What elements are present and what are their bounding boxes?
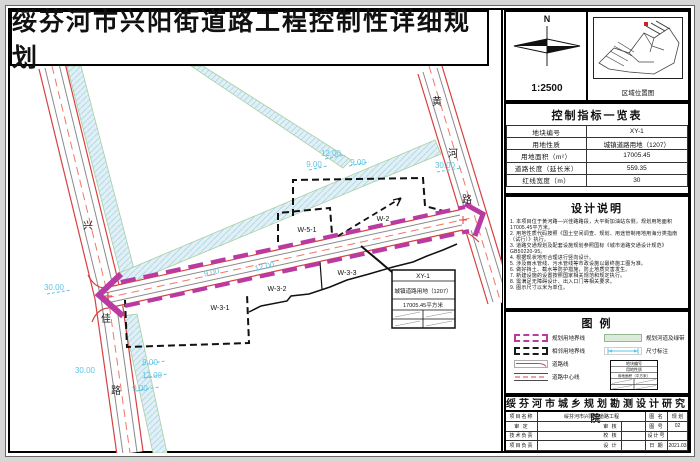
- scale-label: 1:2500: [506, 83, 588, 94]
- row-label: 地块编号: [507, 126, 587, 138]
- dim-label: 9.00: [142, 358, 158, 367]
- approver-value: [538, 422, 600, 432]
- legend-item: 规划用地界线: [514, 334, 585, 342]
- design-no-value: [668, 432, 688, 442]
- design-no-label: 设计号: [646, 432, 668, 442]
- road-name-char: 兴: [83, 220, 93, 232]
- plan-map: 12.00 9.00 9.00 30.00 9.00 12.00 30.00 3…: [9, 66, 502, 453]
- design-note: 9. 图示尺寸以米为单位。: [510, 285, 684, 291]
- reviewer-label: 审 核: [600, 422, 622, 432]
- channel-greenbelt-symbol: [604, 334, 642, 342]
- road-name-char: 佳: [101, 312, 111, 325]
- parcel-info-box: XY-1 城镇道路用地（1207） 17005.45平方米: [361, 246, 455, 328]
- project-lead-label: 项目负责: [506, 441, 538, 451]
- legend-item: 尺寸标注: [604, 347, 668, 355]
- control-table-title: 控制指标一览表: [506, 104, 688, 125]
- design-notes-box: 设计说明 1. 本项目位于黄河路—兴佳路路段，大平街加油站东侧，规划用地面积17…: [504, 195, 690, 310]
- info-box-use: 城镇道路用地（1207）: [394, 287, 451, 295]
- reviewer-value: [622, 422, 646, 432]
- approver-label: 审 定: [506, 422, 538, 432]
- row-value: XY-1: [586, 126, 687, 138]
- legend-item: 相邻用地界线: [514, 347, 585, 355]
- adjacent-boundary-symbol: [514, 347, 548, 355]
- checker-label: 校 核: [600, 432, 622, 442]
- compass-location-box: N 1:2500 区域位置图: [504, 10, 690, 102]
- date-label: 日 期: [646, 441, 668, 451]
- title-block-grid: 项目名称 绥芬河市兴阳街道路工程 图 名 规 划 审 定 审 核 图 号 02 …: [506, 412, 688, 451]
- huanghe-road: [418, 66, 502, 304]
- project-name-label: 项目名称: [506, 412, 538, 422]
- road-line-symbol: [514, 360, 548, 368]
- designer-label: 设 计: [600, 441, 622, 451]
- dimension-symbol: [604, 347, 642, 355]
- design-notes-title: 设计说明: [506, 197, 688, 218]
- north-label: N: [506, 14, 588, 24]
- row-label: 用地性质: [507, 138, 587, 150]
- sheet-no-label: 图 号: [646, 422, 668, 432]
- dim-label: 30.00: [75, 366, 96, 375]
- road-name-char: 路: [462, 193, 472, 206]
- institute-name: 绥芬河市城乡规划勘测设计研究院: [506, 397, 688, 412]
- planned-boundary-symbol: [514, 334, 548, 342]
- control-indicator-box: 控制指标一览表 地块编号 XY-1 用地性质 城镇道路用地（1207） 用地面积…: [504, 102, 690, 195]
- project-lead-value: [538, 441, 600, 451]
- centerline-symbol: [514, 373, 548, 381]
- design-note: 2. 用地性质代码按照《国土空间调查、规划、用途管制用地用海分类指南（试行）》执…: [510, 231, 684, 243]
- table-row: 道路长度（延长米） 559.35: [507, 162, 688, 174]
- drawing-name-value: 规 划: [668, 412, 688, 422]
- row-value: 城镇道路用地（1207）: [586, 138, 687, 150]
- legend-label: 规划河道及绿带: [646, 334, 685, 342]
- design-note: 3. 道路交通规划及配套设施规划参照国标《城市道路交通设计规范》GB50220-…: [510, 243, 684, 255]
- legend-label: 尺寸标注: [646, 347, 668, 355]
- dim-label: 12.00: [321, 149, 342, 158]
- parcel-label: W-3-1: [211, 305, 230, 312]
- dim-label: 9.00: [132, 384, 148, 393]
- title-box: 绥芬河市兴阳街道路工程控制性详细规划: [10, 10, 489, 66]
- legend-item: 规划河道及绿带: [604, 334, 685, 342]
- plan-sheet-page: 绥芬河市兴阳街道路工程控制性详细规划: [0, 0, 700, 462]
- design-note: 1. 本项目位于黄河路—兴佳路路段，大平街加油站东侧，规划用地面积17005.4…: [510, 219, 684, 231]
- location-map-caption: 区域位置图: [588, 87, 688, 97]
- compass-panel: N 1:2500: [506, 12, 588, 100]
- legend-label: 道路线: [552, 360, 569, 368]
- legend-box: 图 例 规划用地界线 相邻用地界线 道路线 道路中心线 规划河道及绿带: [504, 310, 690, 395]
- parcel-label: W-2: [377, 216, 390, 223]
- table-row: 用地面积（m²） 17005.45: [507, 150, 688, 162]
- checker-value: [622, 432, 646, 442]
- dim-label: 9.00: [306, 160, 322, 169]
- road-name-char: 河: [448, 148, 458, 160]
- row-value: 30: [586, 174, 687, 186]
- location-map-sketch: [594, 18, 682, 78]
- info-box-symbol: 地块编号 用地性质 用地面积（平方米）: [610, 360, 658, 390]
- row-value: 559.35: [586, 162, 687, 174]
- project-name-value: 绥芬河市兴阳街道路工程: [538, 412, 646, 422]
- parcel-label: W-3-2: [268, 286, 287, 293]
- legend-item: 道路中心线: [514, 373, 580, 381]
- road-name-char: 黄: [432, 95, 442, 108]
- control-table: 地块编号 XY-1 用地性质 城镇道路用地（1207） 用地面积（m²） 170…: [506, 125, 688, 187]
- parcel-label: W-5-1: [298, 227, 317, 234]
- legend-label: 相邻用地界线: [552, 347, 585, 355]
- info-symbol-row: 用地面积（平方米）: [618, 373, 650, 378]
- north-arrow-icon: [508, 26, 586, 66]
- parcel-label: W-3-3: [338, 270, 357, 277]
- designer-value: [622, 441, 646, 451]
- legend-title: 图 例: [506, 312, 688, 333]
- info-box-code: XY-1: [416, 273, 430, 280]
- tech-lead-label: 技术负责: [506, 432, 538, 442]
- info-box-area: 17005.45平方米: [403, 301, 444, 309]
- design-notes-list: 1. 本项目位于黄河路—兴佳路路段，大平街加油站东侧，规划用地面积17005.4…: [506, 218, 688, 291]
- road-name-char: 路: [111, 384, 121, 397]
- location-map-panel: 区域位置图: [588, 12, 688, 100]
- row-label: 红线宽度（m）: [507, 174, 587, 186]
- legend-label: 规划用地界线: [552, 334, 585, 342]
- dim-label: 12.00: [142, 371, 163, 380]
- table-row: 用地性质 城镇道路用地（1207）: [507, 138, 688, 150]
- legend-label: 道路中心线: [552, 373, 580, 381]
- row-label: 用地面积（m²）: [507, 150, 587, 162]
- dim-label: 9.00: [350, 158, 366, 167]
- sheet-no-value: 02: [668, 422, 688, 432]
- plan-map-area: 12.00 9.00 9.00 30.00 9.00 12.00 30.00 3…: [9, 66, 502, 453]
- location-map-frame: [593, 17, 683, 79]
- page-title: 绥芬河市兴阳街道路工程控制性详细规划: [12, 2, 487, 74]
- title-block: 绥芬河市城乡规划勘测设计研究院 项目名称 绥芬河市兴阳街道路工程 图 名 规 划…: [504, 395, 690, 453]
- table-row: 红线宽度（m） 30: [507, 174, 688, 186]
- info-symbol-row: 地块编号: [626, 360, 642, 366]
- table-row: 地块编号 XY-1: [507, 126, 688, 138]
- row-value: 17005.45: [586, 150, 687, 162]
- date-value: 2021.03: [668, 441, 688, 451]
- tech-lead-value: [538, 432, 600, 442]
- dim-label: 30.00: [44, 283, 65, 292]
- row-label: 道路长度（延长米）: [507, 162, 587, 174]
- legend-item: 道路线: [514, 360, 569, 368]
- drawing-name-label: 图 名: [646, 412, 668, 422]
- dim-label: 30.00: [435, 161, 456, 170]
- info-symbol-row: 用地性质: [626, 366, 642, 372]
